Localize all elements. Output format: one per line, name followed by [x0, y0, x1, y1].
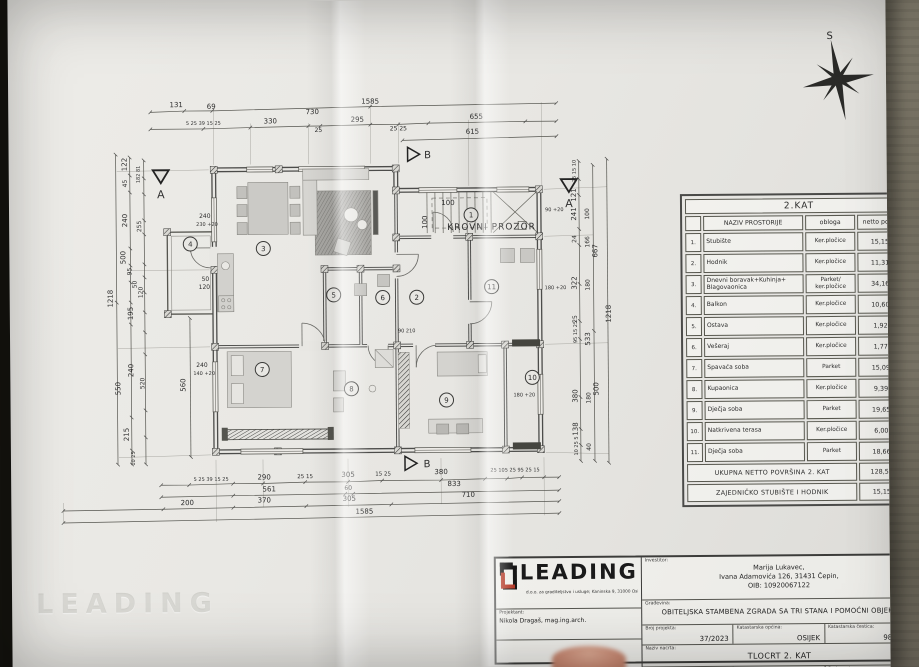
dim-labels-top: 131 69 1585 5 25 39 15 25 330 730 25 295…	[169, 97, 483, 138]
room-finish-cell: Ker.pločice	[805, 232, 855, 251]
dim-label: 710	[462, 491, 475, 499]
krovni-prozor-label: KROVNI PROZOR	[447, 222, 536, 233]
dim-label: 520	[139, 377, 146, 389]
naziv-nacrta-cell: Naziv nacrta: TLOCRT 2. KAT	[642, 643, 890, 667]
room-name-cell: Dječja soba	[705, 442, 805, 462]
room-name-cell: Kupaonica	[704, 379, 804, 399]
total-area-cell: 15,15 m²	[859, 482, 890, 500]
katastarska-cestica-label: Katastarska čestica:	[828, 624, 891, 630]
room-number-cell: 3.	[686, 275, 702, 294]
room-area-cell: 18,66 m²	[859, 441, 891, 460]
total-label-cell: UKUPNA NETTO POVRŠINA 2. KAT	[687, 463, 857, 482]
dim-label: 241	[570, 207, 578, 220]
logo-subtext: d.o.o. za graditeljstvo i usluge; Kanins…	[526, 589, 638, 595]
room-table-totals: UKUPNA NETTO POVRŠINA 2. KAT 128,55 m² Z…	[687, 462, 891, 502]
room-area-cell: 15,09 m²	[858, 357, 890, 376]
dim-label: 10 25	[131, 451, 137, 465]
room-area-cell: 15,15 m²	[857, 231, 890, 250]
room-number-cell: 6.	[686, 338, 702, 357]
table-row: 2. Hodnik Ker.pločice 11,31 m²	[685, 252, 890, 273]
room-number-cell: 11.	[687, 443, 703, 462]
gradevina-name: OBITELJSKA STAMBENA ZGRADA SA TRI STANA …	[645, 606, 891, 616]
katastarska-cestica-value: 9827/26	[883, 633, 890, 641]
dim-label: 180 +20	[513, 392, 535, 398]
dim-label: 1218	[605, 305, 613, 323]
dim-label: 25 105 25 95 25 15	[490, 467, 539, 473]
dim-label: 40	[586, 443, 593, 451]
dim-label: 550	[114, 382, 122, 395]
room-name-cell: Balkon	[704, 295, 804, 315]
dim-label: 50	[202, 276, 210, 283]
paper-watermark: LEADING	[36, 588, 219, 620]
table-total-row: ZAJEDNIČKO STUBIŠTE I HODNIK 15,15 m²	[687, 482, 890, 502]
room-area-cell: 19,65 m²	[859, 399, 891, 418]
extension-lines	[60, 102, 609, 523]
dim-label: 500	[119, 251, 127, 264]
room-area-cell: 9,39 m²	[858, 378, 890, 397]
compass-north-label: S	[826, 31, 832, 42]
dim-label: 305	[343, 495, 356, 503]
room-name-cell: Natkrivena terasa	[705, 421, 805, 441]
room-name-cell: Vešeraj	[704, 337, 804, 357]
dim-label: 370	[258, 496, 271, 504]
katastarska-cestica-cell: Katastarska čestica: 9827/26	[825, 623, 891, 643]
room-name-cell: Spavaća soba	[704, 358, 804, 378]
dim-label: 322	[571, 276, 579, 289]
projektant-cell: Projektant: Nikola Dragaš, mag.ing.arch.	[496, 608, 641, 640]
room-table-col-area: netto površina	[857, 214, 891, 229]
dim-label: 240	[121, 214, 129, 227]
room-number-cell: 8.	[686, 380, 702, 399]
dim-label: 121	[570, 188, 578, 201]
room-number-cell: 7.	[686, 359, 702, 378]
table-row: 4. Balkon Ker.pločice 10,60 m²	[686, 294, 891, 315]
room-number: 8	[349, 385, 354, 393]
broj-projekta-label: Broj projekta:	[645, 626, 729, 632]
dim-label: 24	[571, 235, 578, 243]
room-number-cell: 9.	[687, 401, 703, 420]
room-finish-cell: Ker.pločice	[805, 253, 855, 272]
katastarska-opcina-label: Katastarska općina:	[737, 625, 821, 631]
dim-label: 25 25	[390, 125, 407, 132]
dim-label: 140 +20	[193, 371, 215, 377]
dim-label: 120	[199, 284, 211, 291]
dim-label: 215	[123, 428, 131, 441]
room-number: 2	[414, 294, 419, 302]
broj-projekta-cell: Broj projekta: 37/2023	[642, 625, 733, 645]
logo-text: LEADING	[520, 562, 638, 584]
room-finish-cell: Ker.pločice	[807, 421, 857, 440]
dim-label: 25	[315, 127, 323, 134]
investitor-cell: Investitor: Marija Lukavec, Ivana Adamov…	[642, 555, 891, 600]
dim-label: 5 25 39 15 25	[186, 121, 221, 127]
katastarska-opcina-value: OSIJEK	[797, 634, 820, 642]
room-number: 11	[487, 283, 496, 291]
dim-label: 240	[196, 362, 208, 369]
room-finish-cell: Ker.pločice	[806, 295, 856, 314]
dim-label: 90 +20	[545, 207, 564, 213]
dim-label: 10 25 5	[574, 436, 580, 455]
room-area-cell: 1,77 m²	[858, 336, 891, 355]
dim-label: 90 210	[398, 328, 416, 334]
room-table-header: NAZIV PROSTORIJE obloga netto površina	[685, 214, 891, 231]
dim-label: 200	[181, 499, 194, 507]
room-number: 9	[444, 397, 449, 405]
dim-label: 615	[466, 128, 479, 136]
room-area-cell: 6,00 m²	[859, 420, 891, 439]
total-label-cell: ZAJEDNIČKO STUBIŠTE I HODNIK	[687, 483, 857, 502]
room-finish-cell: Parket	[807, 400, 857, 419]
dim-label: 180	[585, 279, 592, 291]
gradevina-label: Građevina:	[645, 599, 891, 606]
dim-label: 230 +20	[196, 222, 218, 228]
dim-label: 138	[572, 422, 580, 435]
dim-label: 100	[584, 208, 591, 220]
room-number: 1	[469, 211, 474, 219]
room-number: 4	[188, 241, 193, 249]
title-block: LEADING d.o.o. za graditeljstvo i usluge…	[494, 553, 891, 664]
gradevina-cell: Građevina: OBITELJSKA STAMBENA ZGRADA SA…	[642, 598, 891, 625]
section-b-label: B	[424, 150, 431, 161]
room-number-cell: 4.	[686, 296, 702, 315]
dim-label: 655	[470, 113, 483, 121]
room-number-cell: 2.	[685, 254, 701, 273]
room-finish-cell: Parket	[806, 358, 856, 377]
dim-label: 195	[127, 307, 135, 320]
room-table-title: 2.KAT	[685, 197, 891, 214]
table-row: 11. Dječja soba Parket 18,66 m²	[687, 441, 891, 462]
room-finish-cell: Ker.pločice	[806, 337, 856, 356]
photo-of-floor-plan: KROVNI PROZOR A A B B 1 2 3	[0, 0, 919, 667]
room-name-cell: Stubište	[703, 232, 803, 252]
room-name-cell: Hodnik	[703, 253, 803, 273]
dim-label: 182 81	[136, 166, 142, 184]
room-number-cell: 5.	[686, 317, 702, 336]
dim-label: 120	[138, 286, 145, 298]
dim-label: 15 25	[375, 471, 391, 477]
dim-label: 69	[207, 103, 216, 111]
room-name-cell: Dnevni boravak+Kuhinja+ Blagovaonica	[704, 274, 804, 294]
dim-label: 180	[585, 392, 592, 404]
dim-label: 1218	[107, 290, 115, 308]
dim-label: 95 15 25	[573, 321, 579, 343]
room-name-cell: Ostava	[704, 316, 804, 336]
dim-label: 131	[169, 101, 182, 109]
dim-label: 330	[264, 117, 277, 125]
table-total-row: UKUPNA NETTO POVRŠINA 2. KAT 128,55 m²	[687, 462, 891, 482]
paper-sheet: KROVNI PROZOR A A B B 1 2 3	[7, 0, 890, 667]
broj-projekta-value: 37/2023	[700, 635, 729, 643]
dim-label: 100	[441, 199, 454, 207]
dim-label: 561	[262, 485, 275, 493]
dim-label: 5 25 39 15 25	[194, 477, 229, 483]
room-name-cell: Dječja soba	[705, 400, 805, 420]
room-number-cell: 10.	[687, 422, 703, 441]
company-logo: LEADING d.o.o. za graditeljstvo i usluge…	[496, 558, 641, 610]
dimension-lines	[60, 103, 609, 523]
room-finish-cell: Parket	[807, 442, 857, 461]
dim-label: 295	[351, 116, 364, 124]
room-table: 2.KAT NAZIV PROSTORIJE obloga netto povr…	[680, 192, 891, 507]
title-block-right: Investitor: Marija Lukavec, Ivana Adamov…	[642, 555, 891, 667]
dim-label: 380	[434, 468, 447, 476]
dim-label: 100	[421, 215, 429, 228]
room-number: 6	[380, 294, 385, 302]
dim-label: 95	[126, 267, 133, 275]
room-table-col-finish: obloga	[805, 215, 855, 230]
section-b-label: B	[424, 459, 431, 470]
table-row: 10. Natkrivena terasa Ker.pločice 6,00 m…	[687, 420, 891, 441]
room-number-cell: 1.	[685, 233, 701, 252]
table-row: 1. Stubište Ker.pločice 15,15 m²	[685, 231, 890, 252]
room-number: 3	[261, 245, 266, 253]
leading-logo-icon	[500, 562, 518, 588]
dim-label: 533	[584, 332, 592, 345]
dim-label: 1585	[361, 98, 379, 106]
dim-label: 122	[121, 158, 129, 171]
table-row: 5. Ostava Ker.pločice 1,92 m²	[686, 315, 891, 336]
dim-label: 166	[584, 236, 591, 248]
table-row: 3. Dnevni boravak+Kuhinja+ Blagovaonica …	[686, 273, 891, 294]
projektant-label: Projektant:	[499, 610, 638, 616]
dim-label: 240	[127, 364, 135, 377]
room-number: 10	[528, 374, 537, 382]
naziv-nacrta-value: TLOCRT 2. KAT	[646, 650, 891, 661]
investitor-oib: OIB: 10920067122	[645, 580, 891, 591]
compass-rose	[795, 33, 882, 127]
dim-label: 1585	[355, 508, 373, 516]
table-row: 9. Dječja soba Parket 19,65 m²	[687, 399, 891, 420]
projektant-name: Nikola Dragaš, mag.ing.arch.	[499, 617, 638, 625]
dim-labels-bottom: 5 25 39 15 25 290 25 15 305 15 25 380 25…	[180, 467, 540, 517]
room-area-cell: 11,31 m²	[857, 252, 890, 271]
room-finish-cell: Ker.pločice	[806, 316, 856, 335]
dim-label: 833	[447, 480, 460, 488]
room-table-col-name: NAZIV PROSTORIJE	[703, 215, 803, 231]
room-table-body: 1. Stubište Ker.pločice 15,15 m² 2. Hodn…	[685, 231, 890, 462]
room-area-cell: 10,60 m²	[858, 294, 891, 313]
total-area-cell: 128,55 m²	[859, 462, 891, 480]
dim-label: 45	[122, 180, 129, 188]
dim-label: 255	[136, 220, 143, 232]
room-area-cell: 34,16 m²	[858, 273, 891, 292]
katastarska-opcina-cell: Katastarska općina: OSIJEK	[734, 624, 825, 644]
project-meta-row: Broj projekta: 37/2023 Katastarska općin…	[642, 623, 890, 645]
dim-label: 667	[591, 244, 599, 257]
room-number: 7	[260, 366, 265, 374]
dim-label: 25 15 10	[572, 160, 578, 182]
section-a-label: A	[157, 188, 165, 201]
room-number: 5	[331, 291, 336, 299]
room-finish-cell: Parket/ ker.pločice	[806, 274, 856, 293]
dim-label: 560	[179, 378, 187, 391]
room-finish-cell: Ker.pločice	[806, 379, 856, 398]
room-area-cell: 1,92 m²	[858, 315, 891, 334]
table-row: 8. Kupaonica Ker.pločice 9,39 m²	[686, 378, 890, 399]
dim-label: 180 +20	[545, 285, 567, 291]
dim-label: 290	[257, 473, 270, 481]
table-row: 6. Vešeraj Ker.pločice 1,77 m²	[686, 336, 891, 357]
table-row: 7. Spavaća soba Parket 15,09 m²	[686, 357, 890, 378]
dim-label: 60	[344, 485, 352, 492]
dim-label: 380	[571, 389, 579, 402]
dim-label: 305	[341, 471, 354, 479]
dim-label: 240	[199, 213, 211, 220]
dim-label: 500	[592, 382, 600, 395]
room-table-corner-cell	[685, 216, 701, 231]
dim-label: 25 15	[297, 474, 313, 480]
finger	[552, 646, 626, 667]
dim-label: 730	[306, 108, 319, 116]
